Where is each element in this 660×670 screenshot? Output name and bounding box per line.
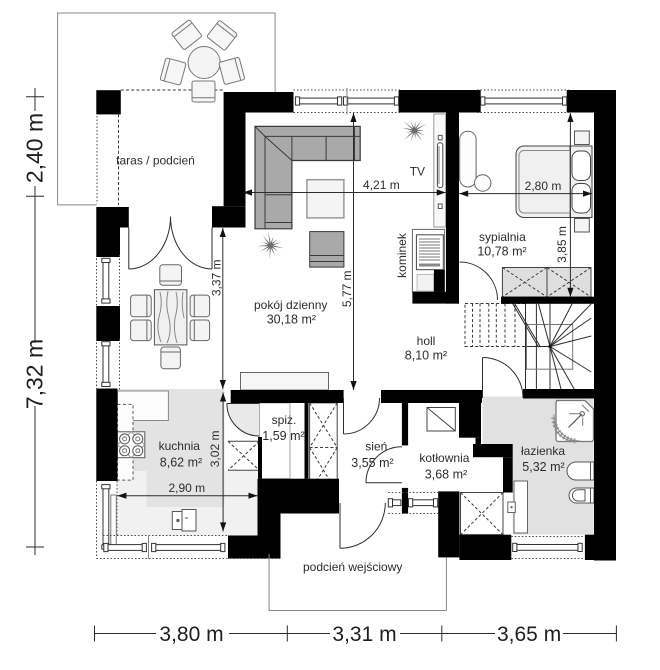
svg-text:3,80 m: 3,80 m <box>159 623 223 646</box>
svg-text:kotłownia: kotłownia <box>419 451 469 465</box>
svg-text:TV: TV <box>410 165 425 179</box>
svg-text:kuchnia: kuchnia <box>159 439 201 453</box>
svg-text:3,31 m: 3,31 m <box>332 623 396 646</box>
svg-text:2,40 m: 2,40 m <box>22 113 48 183</box>
svg-text:3,85 m: 3,85 m <box>555 226 569 263</box>
svg-text:2,90 m: 2,90 m <box>168 481 205 495</box>
svg-text:sypialnia: sypialnia <box>479 230 526 244</box>
svg-text:łazienka: łazienka <box>521 444 565 458</box>
svg-text:spiż.: spiż. <box>272 413 297 427</box>
svg-text:kominek: kominek <box>395 232 409 278</box>
svg-text:5,77 m: 5,77 m <box>340 270 354 307</box>
svg-text:3,37 m: 3,37 m <box>209 259 223 296</box>
svg-text:3,55 m²: 3,55 m² <box>351 456 393 470</box>
svg-text:holl: holl <box>417 334 436 348</box>
svg-text:8,62 m²: 8,62 m² <box>160 456 202 470</box>
svg-text:3,68 m²: 3,68 m² <box>425 468 467 482</box>
svg-text:8,10 m²: 8,10 m² <box>405 349 447 363</box>
svg-text:3,65 m: 3,65 m <box>497 623 561 646</box>
svg-text:7,32 m: 7,32 m <box>22 339 48 409</box>
svg-text:4,21 m: 4,21 m <box>363 178 400 192</box>
svg-text:pokój dzienny: pokój dzienny <box>254 298 327 312</box>
svg-text:2,80 m: 2,80 m <box>525 179 562 193</box>
svg-text:5,32 m²: 5,32 m² <box>522 460 564 474</box>
svg-text:taras / podcień: taras / podcień <box>116 154 195 168</box>
svg-text:3,02 m: 3,02 m <box>208 431 222 468</box>
svg-text:30,18 m²: 30,18 m² <box>267 313 316 327</box>
svg-text:1,59 m²: 1,59 m² <box>262 429 304 443</box>
svg-text:10,78 m²: 10,78 m² <box>477 245 526 259</box>
svg-text:podcień wejściowy: podcień wejściowy <box>303 560 402 574</box>
